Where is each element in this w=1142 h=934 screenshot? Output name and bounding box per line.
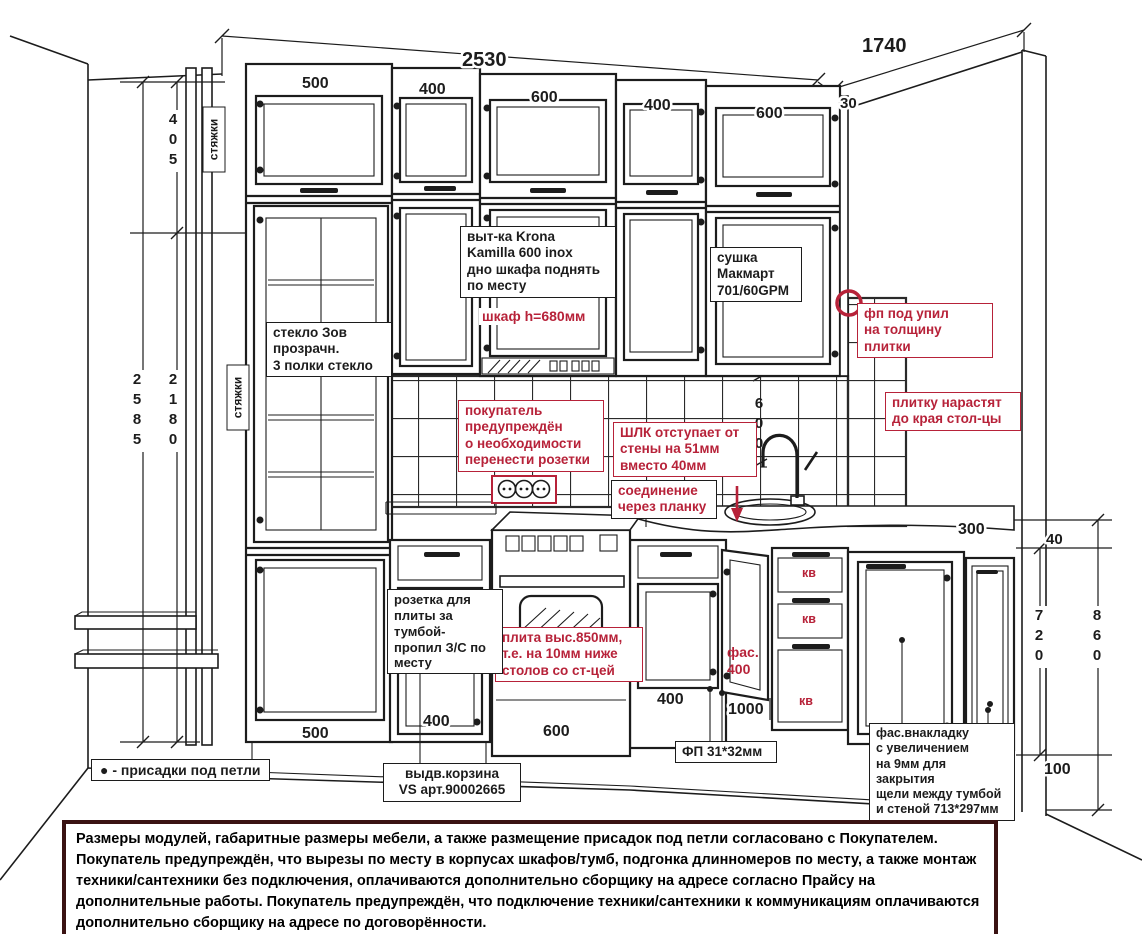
dim-plinth-height: 100 [1044, 761, 1071, 778]
drawer-kv-1: кв [802, 566, 816, 580]
hinge-legend-text: - присадки под петли [112, 762, 260, 778]
note-glass-shelves: стекло Зов прозрачн. 3 полки стекло [266, 322, 392, 377]
dim-upper-5: 600 [756, 105, 783, 122]
wall-pipes [75, 68, 218, 745]
note-shlk-offset: ШЛК отступает от стены на 51мм вместо 40… [613, 422, 757, 477]
note-corner-facade: фас. 400 [727, 644, 759, 678]
dim-door-top-height: 405 [164, 110, 181, 172]
note-pullout-basket: выдв.корзина VS арт.90002665 [383, 763, 521, 802]
dim-upper-3: 600 [531, 89, 558, 106]
ties-label-middle: стяжки [227, 365, 250, 431]
dim-counter-thickness: 40 [1046, 531, 1063, 548]
dim-filler: 30 [840, 95, 857, 112]
dim-base-total-height: 860 [1088, 606, 1105, 668]
dim-return-width: 1740 [862, 35, 907, 57]
dim-upper-4: 400 [644, 97, 671, 114]
note-joint: соединение через планку [611, 480, 717, 519]
dim-corner-width: 1000 [728, 701, 764, 718]
note-dryer: сушка Макмарт 701/60GPM [710, 247, 802, 302]
dim-base-height: 720 [1030, 606, 1047, 668]
drawer-kv-3: кв [799, 694, 813, 708]
dim-base-1: 500 [302, 725, 329, 742]
dim-base-3: 600 [543, 723, 570, 740]
hinge-dot-icon: ● [100, 762, 108, 778]
note-stove-socket: розетка для плиты за тумбой- пропил З/С … [387, 589, 503, 674]
drawer-kv-2: кв [802, 612, 816, 626]
dim-height-total: 2585 [128, 370, 145, 452]
dim-upper-1: 500 [302, 75, 329, 92]
dim-height-upper: 2180 [164, 370, 181, 452]
note-facade-insert: фас.внакладку с увеличением на 9мм для з… [869, 723, 1015, 821]
dim-base-2: 400 [423, 713, 450, 730]
footer-disclaimer: Размеры модулей, габаритные размеры мебе… [62, 820, 998, 934]
dim-base-4: 400 [657, 691, 684, 708]
hinge-legend: ● - присадки под петли [91, 759, 270, 781]
note-hood-height: шкаф h=680мм [479, 308, 588, 325]
note-tile-extend: плитку нарастят до края стол-цы [885, 392, 1021, 431]
note-stove-height: плита выс.850мм, т.е. на 10мм ниже столо… [495, 627, 643, 682]
note-hood: выт-ка Krona Kamilla 600 inox дно шкафа … [460, 226, 616, 298]
kitchen-drawing: 2530 1740 30 500 400 600 400 600 500 400… [0, 0, 1142, 934]
ties-label-top: стяжки [203, 107, 226, 173]
socket-icon [492, 476, 556, 503]
dim-return-depth: 300 [958, 521, 985, 538]
dim-total-width: 2530 [462, 49, 507, 71]
dim-upper-2: 400 [419, 81, 446, 98]
note-outlets-warning: покупатель предупреждён о необходимости … [458, 400, 604, 472]
note-fp-size: ФП 31*32мм [675, 741, 777, 763]
note-fp-cut: фп под упил на толщину плитки [857, 303, 993, 358]
